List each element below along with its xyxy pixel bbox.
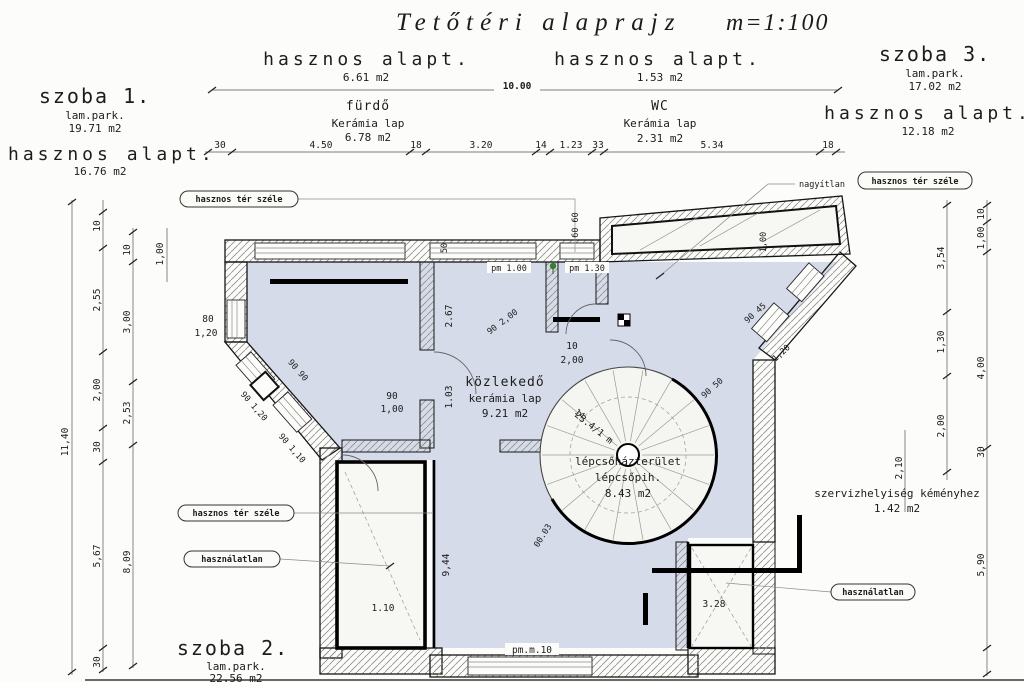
window-top-3: [560, 243, 594, 259]
dim-top-row: 30 4.50 18 3.20 14 1.23 33 5.34 18: [214, 140, 834, 151]
szoba2-name: szoba 2.: [177, 636, 289, 660]
dim-plan-100: 1,00: [381, 404, 404, 415]
dim-overall: 10.00: [503, 81, 532, 92]
dim-plan-328: 3.28: [703, 599, 726, 610]
shaft-symbol: [618, 314, 630, 326]
dim-plan-6060: 60 60: [571, 212, 581, 238]
dim-top-4: 14: [535, 140, 547, 151]
szoba2-area: 22.56 m2: [210, 672, 263, 682]
dim-left-2: 2,55: [92, 289, 103, 312]
title-scale: m=1:100: [726, 10, 830, 36]
wc-area: 2.31 m2: [637, 132, 683, 145]
wall-right: [753, 360, 775, 542]
dim-right-2: 2,00: [936, 414, 947, 437]
label-szoba1: szoba 1. lam.park. 19.71 m2 hasznos alap…: [8, 84, 216, 178]
lepcsohaz-name: lépcsőházterület: [575, 455, 681, 468]
callout-unused1-label: használatlan: [201, 555, 262, 565]
wc-useful-area: 1.53 m2: [637, 71, 683, 84]
dim-left-col: 11,40 10 2,55 2,00 30 5,67 30 10 3,00 2,…: [60, 220, 166, 668]
dim-plan-200: 2,00: [561, 355, 584, 366]
window-top-1: [255, 243, 405, 259]
kozlekedo-area: 9.21 m2: [482, 407, 528, 420]
dim-left-5: 5,67: [92, 545, 103, 568]
dim-left-6: 30: [92, 656, 103, 668]
dim-plan-pmm10: pm.m.10: [512, 645, 552, 656]
szerviz-area: 1.42 m2: [874, 502, 920, 515]
dim-right-8: 5,90: [976, 553, 987, 576]
wc-useful: hasznos alapt.: [554, 49, 762, 70]
szoba3-useful-area: 12.18 m2: [902, 125, 955, 138]
kozlekedo-name: közlekedő: [465, 375, 544, 390]
dim-plan-110: 1.10: [372, 603, 395, 614]
partition-6: [676, 542, 688, 650]
dim-left-8: 3,00: [122, 310, 133, 333]
szerviz-name: szervizhelyiség kéményhez: [814, 487, 980, 500]
dim-plan-944: 9,44: [441, 553, 452, 576]
dim-right-col: 3,54 1,30 2,00 2,10 10 1,00 4,00 30 5,90: [894, 208, 987, 576]
dim-plan-80: 80: [202, 314, 214, 325]
dim-overall-label: 10.00: [503, 81, 532, 92]
dim-right-5: 1,00: [976, 226, 987, 249]
callout-unused2-label: használatlan: [842, 588, 903, 598]
drawing-title: Tetőtéri alaprajz m=1:100: [396, 9, 830, 36]
lepcsohaz-area: 8.43 m2: [605, 487, 651, 500]
szoba1-useful: hasznos alapt.: [8, 144, 216, 165]
callout-edge3-label: hasznos tér széle: [193, 508, 280, 519]
szoba1-useful-area: 16.76 m2: [74, 165, 127, 178]
szoba3-floor: lam.park.: [905, 67, 965, 80]
dim-left-0: 11,40: [60, 427, 71, 456]
wing-top-right: [600, 196, 850, 262]
wall-right-lower: [753, 542, 775, 654]
label-szoba2: szoba 2. lam.park. 22.56 m2: [177, 636, 289, 682]
dim-top-6: 33: [592, 140, 603, 151]
wc-floor: Kerámia lap: [624, 117, 697, 130]
title-text: Tetőtéri alaprajz: [396, 9, 681, 36]
dim-top-8: 18: [822, 140, 834, 151]
szoba3-area: 17.02 m2: [909, 80, 962, 93]
szoba3-useful: hasznos alapt.: [824, 103, 1024, 124]
furdo-useful-area: 6.61 m2: [343, 71, 389, 84]
furdo-useful: hasznos alapt.: [263, 49, 471, 70]
dim-top-0: 30: [214, 140, 226, 151]
dim-left-9: 2,53: [122, 402, 133, 425]
dim-top-2: 18: [410, 140, 422, 151]
dim-plan-pm100: pm 1.00: [491, 264, 527, 274]
dim-top-5: 1.23: [560, 140, 583, 151]
szoba1-floor: lam.park.: [65, 109, 125, 122]
room-szoba2-outline: [337, 462, 425, 648]
window-left: [227, 300, 245, 338]
dim-plan-50: 50: [440, 243, 450, 253]
dim-left-4: 30: [92, 441, 103, 453]
dim-top-3: 3.20: [470, 140, 493, 151]
szoba3-name: szoba 3.: [879, 42, 991, 66]
label-wc: hasznos alapt. 1.53 m2 WC Kerámia lap 2.…: [554, 49, 762, 145]
dim-left-3: 2,00: [92, 378, 103, 401]
wall-bottom-left: [320, 648, 442, 674]
dim-top-1: 4.50: [310, 140, 333, 151]
dim-plan-90: 90: [386, 391, 398, 402]
dim-plan-10: 10: [566, 341, 578, 352]
dim-top-7: 5.34: [701, 140, 724, 151]
dim-right-0: 3,54: [936, 246, 947, 269]
szoba1-name: szoba 1.: [39, 84, 151, 108]
dim-left-10: 8,09: [122, 550, 133, 573]
dim-plan-pm130: pm 1.30: [569, 264, 605, 274]
dim-plan-100b: 1,00: [759, 232, 769, 252]
label-szerviz: szervizhelyiség kéményhez 1.42 m2: [814, 487, 980, 515]
dim-plan-120: 1,20: [195, 328, 218, 339]
floorplan-drawing: Tetőtéri alaprajz m=1:100: [0, 0, 1024, 682]
label-szoba3: szoba 3. lam.park. 17.02 m2 hasznos alap…: [824, 42, 1024, 138]
partition-1a: [420, 262, 434, 350]
dim-right-7: 30: [976, 446, 987, 458]
dim-left-11: 1,00: [155, 242, 166, 265]
floorplan-page: Tetőtéri alaprajz m=1:100: [0, 0, 1024, 682]
szoba1-area: 19.71 m2: [69, 122, 122, 135]
lepcsohaz-line2: lépcsőpih.: [595, 471, 661, 484]
dim-left-1: 10: [92, 220, 103, 232]
dim-left-7: 10: [122, 244, 133, 256]
dim-right-3: 2,10: [894, 456, 905, 479]
dim-right-6: 4,00: [976, 356, 987, 379]
furdo-area: 6.78 m2: [345, 131, 391, 144]
furdo-name: fürdő: [346, 99, 390, 114]
dim-plan-267: 2.67: [444, 305, 455, 328]
wc-name: WC: [651, 99, 669, 114]
furdo-floor: Kerámia lap: [332, 117, 405, 130]
partition-4: [342, 440, 430, 452]
window-bottom: [468, 657, 592, 675]
dim-right-1: 1,30: [936, 330, 947, 353]
label-furdo: hasznos alapt. 6.61 m2 fürdő Kerámia lap…: [263, 49, 471, 144]
dim-plan-103: 1.03: [444, 386, 455, 409]
callout-edge1-label: hasznos tér széle: [196, 194, 283, 205]
callout-edge2-prefix: nagyítlan: [799, 180, 845, 190]
dim-right-4: 10: [976, 208, 987, 220]
kozlekedo-floor: kerámia lap: [469, 392, 542, 405]
callout-edge2-label: hasznos tér széle: [872, 176, 959, 187]
